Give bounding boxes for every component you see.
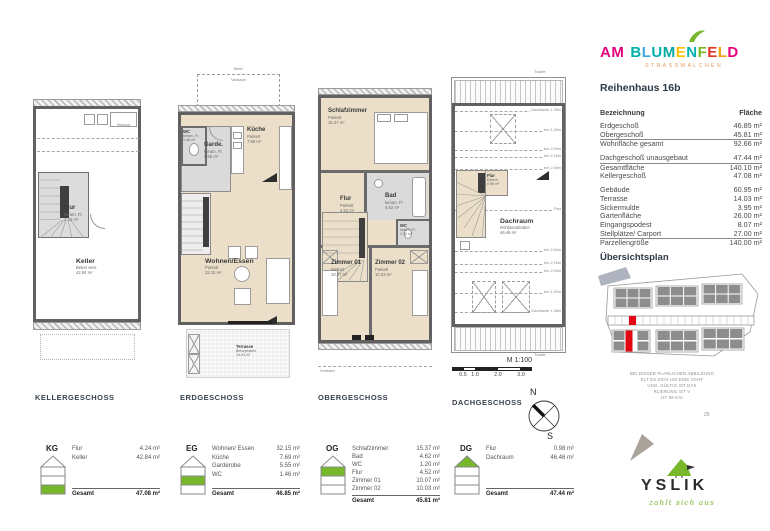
pillow [394,114,408,122]
legend-rows: Wohnen/ Essen32.15 m² Küche7.69 m² Garde… [212,445,300,479]
room-label-zimmer01: Zimmer 01 Parkett 10.07 m² [331,260,361,278]
scale-tick: 2.0 [494,372,502,378]
sofa [266,258,290,304]
table-row: Wohnfläche gesamt92.66 m² [600,140,762,149]
logo-subtitle: STRASSWALCHEN [614,63,754,69]
disclaimer-text: BEI DIESER PLANLICHEN ABBILDUNG ELT ES S… [606,371,738,401]
kitchen-sink [233,142,242,149]
site-plan-title: Übersichtsplan [600,252,669,263]
compass-south-label: S [547,431,553,440]
bird-icon [664,456,696,478]
vordach-label: Vordach [197,77,280,82]
bed [412,270,428,316]
scale-tick: 0.5 [459,372,467,378]
table-row: Kellergeschoß47.08 m² [600,172,762,181]
compass-north-label: N [530,387,537,397]
heizung-box: Heizung [110,112,137,127]
scale-segments [452,367,532,371]
legend-kg: KG Flur4.24 m² Keller42.84 m² Gesamt47.0… [38,444,164,514]
area-table: Bezeichnung Fläche Erdgeschoß46.85 m² Ob… [600,108,762,248]
room-label-flur: Flur Estrich 0.98 m² [487,173,499,187]
legend-code: EG [186,444,198,453]
room-label-terrasse: Terrasse Betonplatten 14.03 m² [236,344,256,358]
kg-dashed-line [37,151,139,152]
legend-og: OG Schlafzimmer15.37 m² Bad4.62 m² WC1.2… [318,444,444,514]
room-label-bad: Bad keram. Fl. 4.62 m² [385,193,404,211]
traufe-label: Traufe [534,352,545,357]
roof-height-line: Dachkante 1.36m [455,111,562,112]
party-wall-hatch [178,105,295,112]
highlighted-unit-16b [626,331,633,352]
page-title: Reihenhaus 16b [600,82,681,94]
wardrobe [410,250,428,264]
caption-kellergeschoss: KELLERGESCHOSS [35,393,115,402]
logo-wordmark: A M B L U M E N F E L D [600,44,754,61]
stufe-label: Stufe [196,66,280,71]
og-partition [321,170,429,173]
roof-window [490,114,516,144]
scale-tick: 1.0 [471,372,479,378]
legend-total: Gesamt45.81 m² [352,495,440,504]
legend-code: DG [460,444,472,453]
planter-box [188,334,200,354]
compass-rose: N S [524,384,564,440]
vordach-label: Vordach [320,368,335,373]
roof-eaves-hatch [454,80,563,104]
traufe-label: Traufe [534,69,545,74]
leaf-icon [688,29,706,44]
party-wall-hatch [33,322,141,330]
room-label-garderobe: Garde. keram. Fl. 5.55 m² [204,142,223,160]
room-label-flur: Flur Parkett 4.52 m² [340,196,354,214]
terrace-door [228,321,272,324]
legend-code: OG [326,444,338,453]
planter-box [188,354,200,374]
house-floor-icon-kg [40,455,66,497]
pillow [377,114,391,122]
caption-obergeschoss: OBERGESCHOSS [318,393,388,402]
washbasin [374,179,383,188]
caption-dachgeschoss: DACHGESCHOSS [452,398,522,407]
page-number: 29 [704,412,710,418]
toilet [189,143,199,156]
kitchen-counter [279,126,292,190]
party-wall-hatch [318,343,432,350]
legend-total: Gesamt46.85 m² [212,488,300,497]
room-label-flur: Flur keram. Fl. 4.24 m² [64,205,83,223]
room-label-wc: WC keram. Fl. 1.20 m² [400,223,416,237]
og-partition [396,219,429,221]
roof-height-line: bm 2.16m [455,157,562,158]
builder-tagline: zahlt sich aus [649,498,715,507]
og-partition [396,219,398,248]
washer-box [84,114,95,125]
scale-label: M 1:100 [450,357,532,364]
og-partition [369,248,372,340]
roof-height-line: bm 2.00m [455,272,562,273]
builder-triangle-mark [630,434,656,462]
roof-height-line: bm 2.16m [455,264,562,265]
house-floor-icon-eg [180,455,206,497]
house-floor-icon-og [320,455,346,497]
roof-window [502,281,530,313]
legend-rows: Schlafzimmer15.37 m² Bad4.62 m² WC1.20 m… [352,445,440,493]
plan-sheet: Heizung Flur keram. Fl. 4.24 m² Keller B… [0,0,770,531]
house-floor-icon-dg [454,455,480,497]
roof-window [472,281,496,313]
room-label-kueche: Küche Parkett 7.69 m² [247,127,265,145]
scale-tick: 3.0 [517,372,525,378]
area-table-header: Bezeichnung Fläche [600,108,762,117]
kg-sickermulde-area [40,334,135,360]
heizung-label: Heizung [117,123,130,127]
room-label-wohnen-essen: Wohnen/Essen Parkett 32.15 m² [205,258,254,276]
legend-total: Gesamt47.44 m² [486,488,574,497]
room-label-schlafzimmer: Schlafzimmer Parkett 15.37 m² [328,108,367,126]
room-label-keller: Keller Beton vers. 42.84 m² [76,258,97,276]
legend-rows: Flur0.98 m² Dachraum46.46 m² [486,445,574,462]
storage-box [460,241,470,250]
roof-height-line: bm 2.60m [455,251,562,252]
roof-eaves-hatch [454,327,563,351]
dryer-box [97,114,108,125]
legend-total: Gesamt47.08 m² [72,488,160,497]
road-shape [598,267,631,286]
table-row: Parzellengröße140.00 m² [600,239,762,248]
eg-staircase [181,193,211,255]
roof-height-line: bm 2.00m [455,150,562,151]
side-table [234,288,251,305]
room-label-zimmer02: Zimmer 02 Parkett 10.03 m² [375,260,405,278]
legend-eg: EG Wohnen/ Essen32.15 m² Küche7.69 m² Ga… [178,444,304,514]
scale-bar: M 1:100 0.5 1.0 2.0 3.0 [450,357,534,383]
door-marker [365,335,374,340]
door-marker [352,335,361,340]
room-label-wc: WC keram. Fl. 1.46 m² [183,129,199,143]
vordach-line [318,366,432,367]
caption-erdgeschoss: ERDGESCHOSS [180,393,244,402]
party-wall-hatch [318,88,432,95]
brand-logo: A M B L U M E N F E L D STRASSWALCHEN [600,44,754,69]
site-plan-map [598,264,766,362]
bathtub [412,177,426,217]
highlighted-carport [629,316,636,325]
room-label-dachraum: Dachraum Rohbetonboden 46.46 m² [500,218,533,236]
kg-dashed-line [37,138,139,139]
legend-dg: DG Flur0.98 m² Dachraum46.46 m² Gesamt47… [452,444,578,514]
legend-code: KG [46,444,58,453]
kitchen-sink [233,132,242,139]
builder-logo-text: YSLIK [641,477,708,495]
legend-rows: Flur4.24 m² Keller42.84 m² [72,445,160,462]
